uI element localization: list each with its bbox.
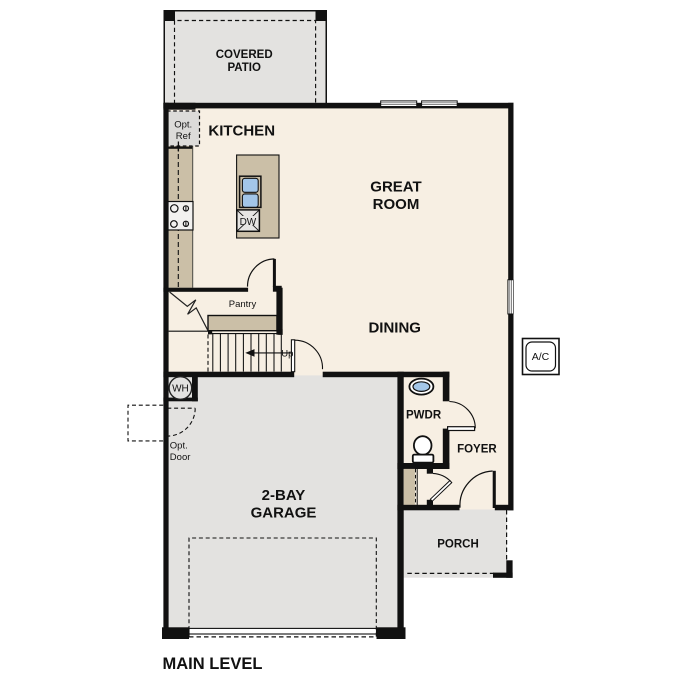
svg-text:DW: DW bbox=[240, 217, 257, 228]
svg-text:KITCHEN: KITCHEN bbox=[208, 123, 275, 140]
svg-text:GARAGE: GARAGE bbox=[251, 505, 317, 522]
svg-text:ROOM: ROOM bbox=[373, 196, 420, 213]
svg-text:COVERED: COVERED bbox=[216, 49, 273, 61]
svg-text:Ref: Ref bbox=[176, 131, 191, 142]
svg-text:DINING: DINING bbox=[368, 320, 421, 337]
svg-text:GREAT: GREAT bbox=[370, 179, 421, 196]
svg-text:PORCH: PORCH bbox=[437, 538, 479, 550]
svg-text:A/C: A/C bbox=[532, 351, 550, 363]
svg-text:FOYER: FOYER bbox=[457, 443, 497, 455]
svg-text:PWDR: PWDR bbox=[406, 410, 442, 422]
svg-text:WH: WH bbox=[172, 384, 189, 395]
svg-text:2-BAY: 2-BAY bbox=[262, 487, 306, 504]
svg-text:Opt.: Opt. bbox=[174, 120, 192, 131]
svg-text:Door: Door bbox=[170, 452, 191, 463]
svg-text:Up: Up bbox=[281, 349, 293, 360]
svg-text:Pantry: Pantry bbox=[229, 299, 257, 310]
svg-text:PATIO: PATIO bbox=[227, 62, 260, 74]
svg-text:MAIN LEVEL: MAIN LEVEL bbox=[163, 655, 263, 673]
svg-text:Opt.: Opt. bbox=[170, 441, 188, 452]
